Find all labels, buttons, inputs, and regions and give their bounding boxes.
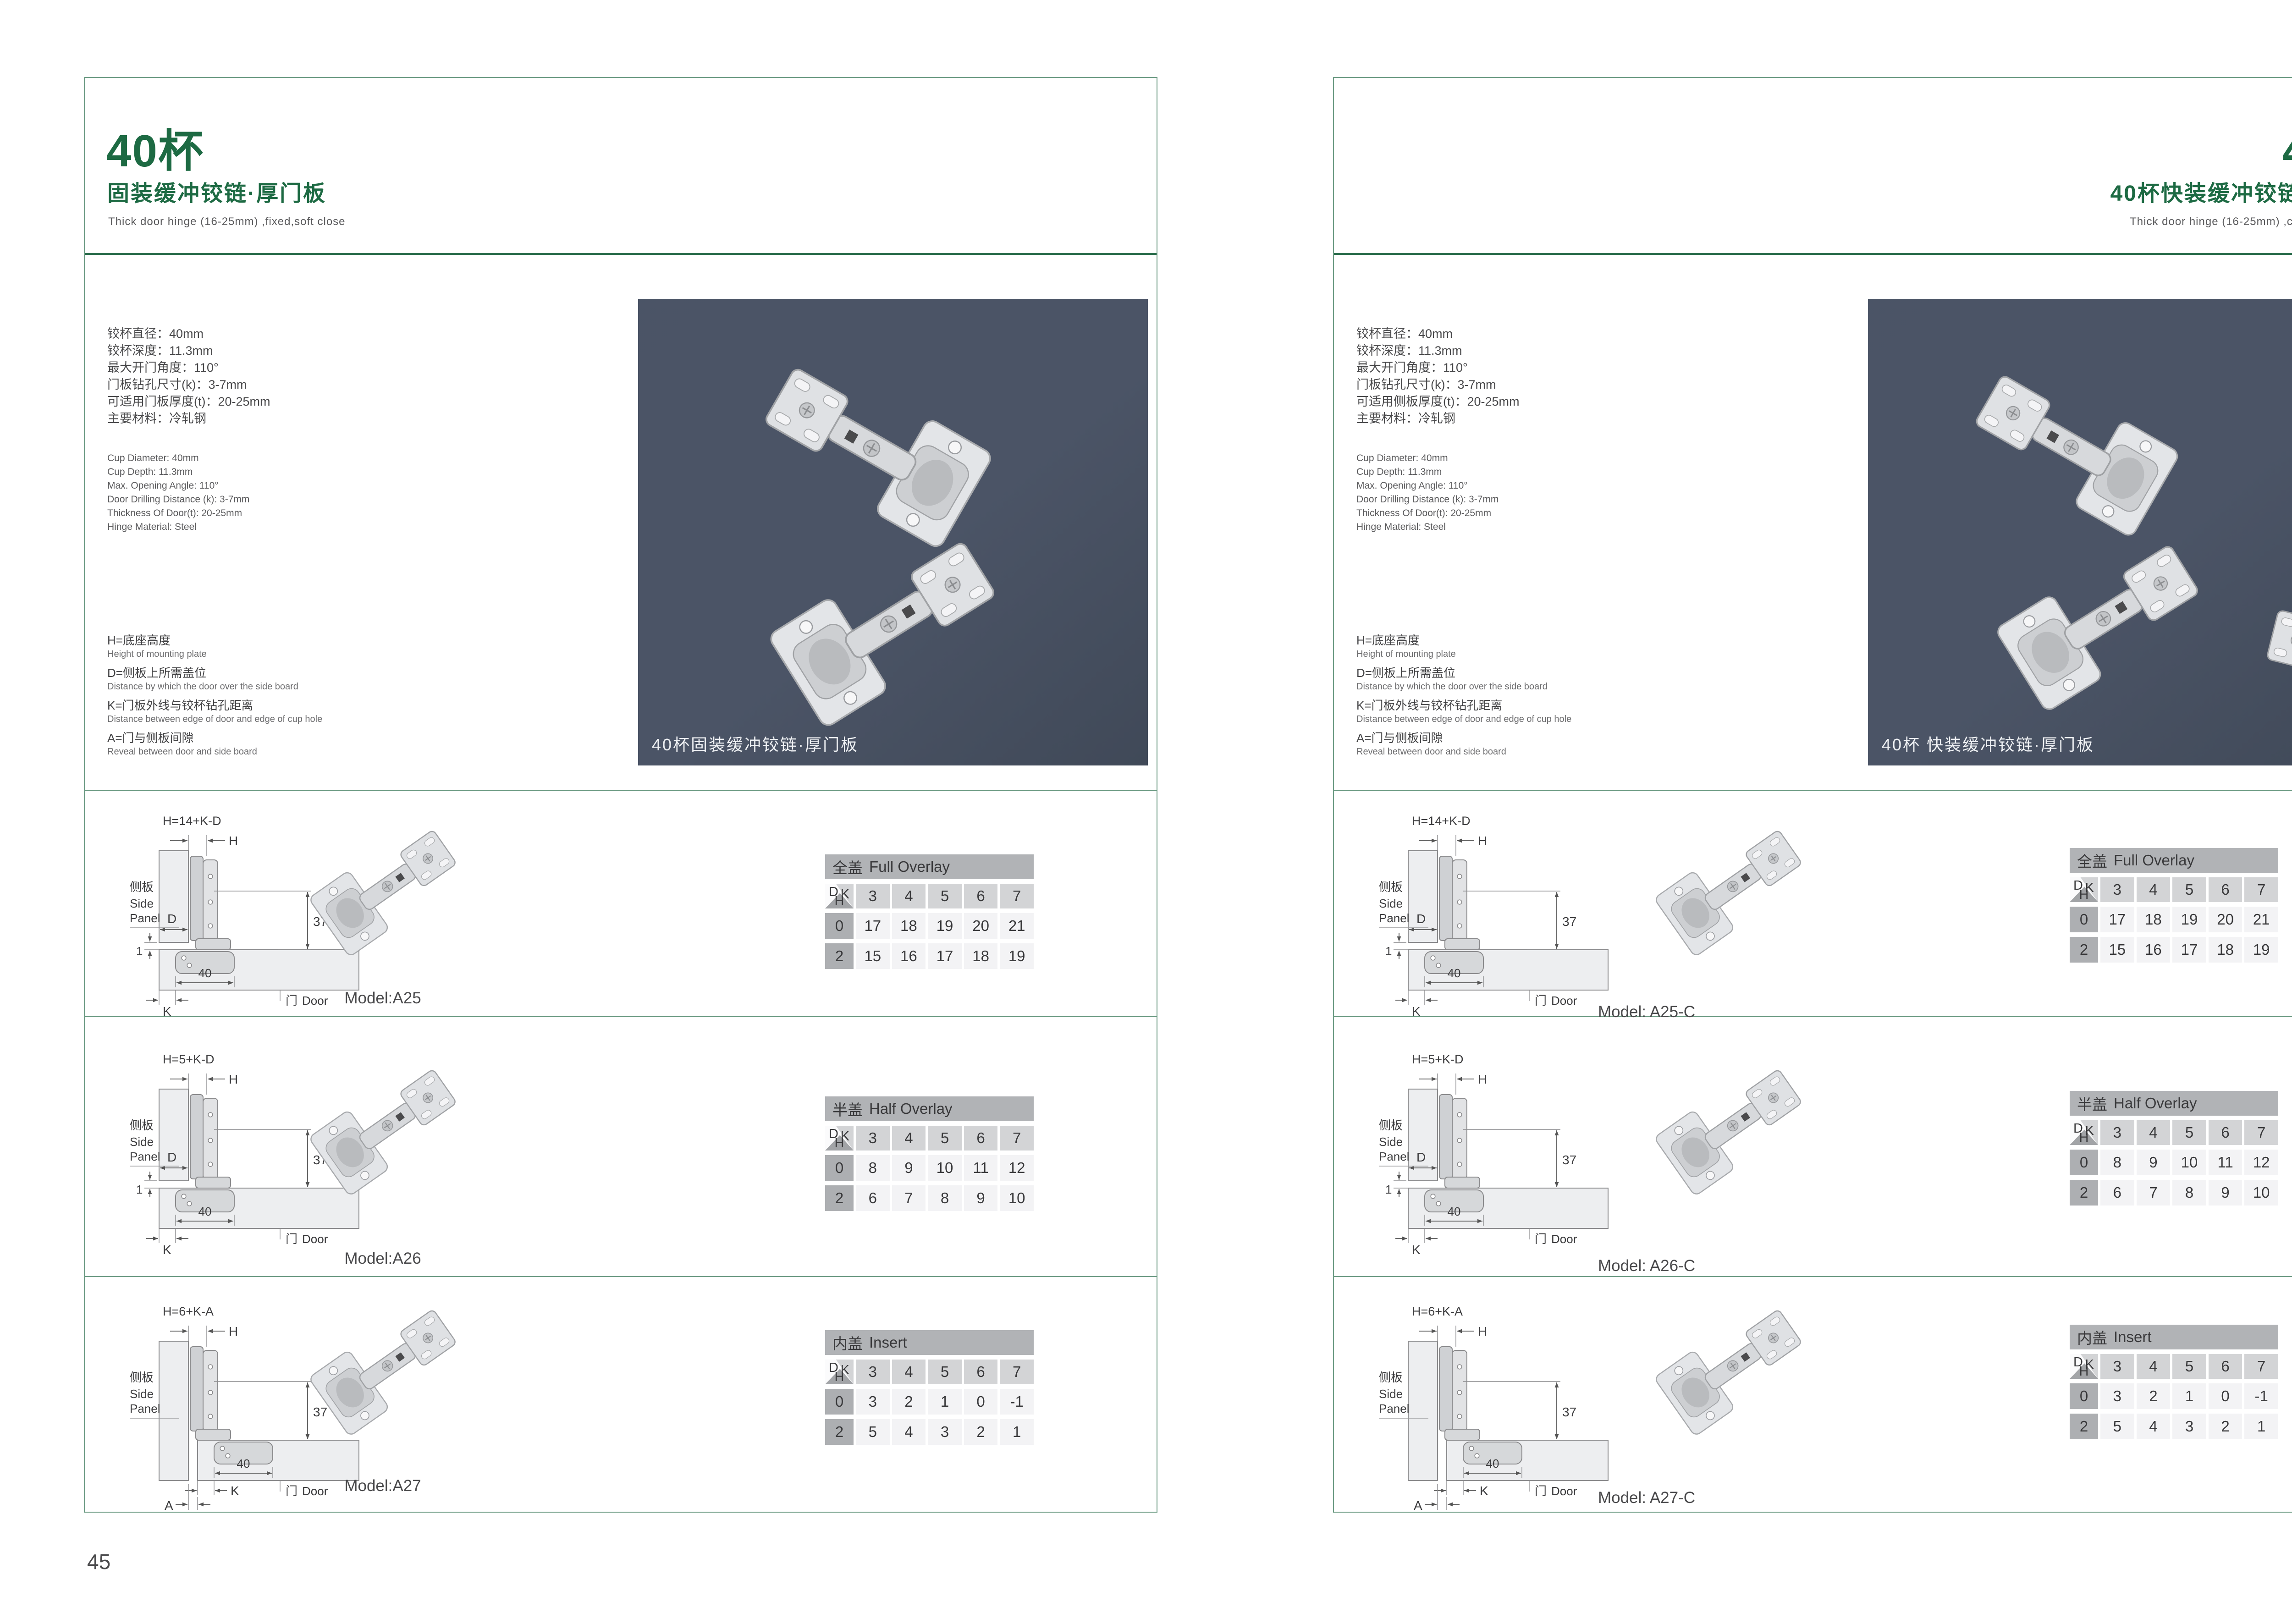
row-label-2: 2 xyxy=(825,1185,854,1211)
legend-en-2: Distance between edge of door and edge o… xyxy=(1356,713,1714,726)
row-label-0: 0 xyxy=(825,1389,854,1415)
legend-en-2: Distance between edge of door and edge o… xyxy=(107,713,465,726)
legend-cn-2: K=门板外线与铰杯钻孔距离 xyxy=(1356,698,1714,713)
spec-cn-2: 最大开门角度：110° xyxy=(107,359,270,376)
diagram-svg: H=14+K-DH37D140K侧板SidePanel门Door xyxy=(1372,810,1665,1023)
col-header-5: 5 xyxy=(2172,1354,2206,1379)
svg-text:40: 40 xyxy=(198,966,212,980)
cell-r1c2: 8 xyxy=(2172,1180,2206,1206)
cell-r0c0: 17 xyxy=(856,913,890,939)
col-header-4: 4 xyxy=(2137,1354,2171,1379)
col-header-6: 6 xyxy=(2209,1354,2242,1379)
table-corner-cell: DKH xyxy=(825,1360,854,1384)
table-title-en: Full Overlay xyxy=(869,858,950,875)
row-label-2: 2 xyxy=(825,943,854,969)
hinge-photo-row2 xyxy=(286,1053,479,1237)
hinge-illustration xyxy=(1964,357,2180,538)
table-title-cn: 半盖 xyxy=(2077,1092,2107,1114)
table-title: 内盖Insert xyxy=(825,1330,1034,1355)
cell-r0c2: 19 xyxy=(928,913,962,939)
tech-diagram-insert: H=6+K-AH3740KA侧板SidePanel门Door xyxy=(1372,1301,1665,1514)
cell-r0c1: 9 xyxy=(892,1155,926,1181)
cell-r0c3: 11 xyxy=(2209,1150,2242,1175)
spec-en-5: Hinge Material: Steel xyxy=(1356,520,1499,534)
tech-diagram-half-overlay: H=5+K-DH37D140K侧板SidePanel门Door xyxy=(1372,1049,1665,1261)
corner-letter-h: H xyxy=(2079,1365,2089,1378)
spec-cn-1: 铰杯深度：11.3mm xyxy=(1356,342,1520,359)
table-grid: DKH345670891011122678910 xyxy=(2070,1120,2278,1206)
col-header-7: 7 xyxy=(1000,1126,1034,1151)
svg-text:K: K xyxy=(1412,1243,1421,1257)
cell-r0c2: 19 xyxy=(2172,907,2206,932)
col-header-4: 4 xyxy=(2137,877,2171,902)
cell-r1c4: 10 xyxy=(2244,1180,2278,1206)
cell-r1c4: 19 xyxy=(2244,937,2278,963)
dimension-legend: H=底座高度Height of mounting plateD=侧板上所需盖位D… xyxy=(107,633,465,763)
svg-text:H=5+K-D: H=5+K-D xyxy=(163,1052,215,1066)
row-label-0: 0 xyxy=(825,1155,854,1181)
row-divider xyxy=(85,790,1157,791)
cell-r0c0: 3 xyxy=(2100,1383,2134,1409)
svg-text:D: D xyxy=(1416,912,1426,926)
hinge-row-svg xyxy=(1632,814,1824,997)
svg-text:37: 37 xyxy=(1562,914,1576,929)
svg-text:A: A xyxy=(1414,1498,1422,1513)
cell-r1c3: 2 xyxy=(964,1419,998,1445)
cell-r0c2: 1 xyxy=(928,1389,962,1415)
specs-english: Cup Diameter: 40mmCup Depth: 11.3mmMax. … xyxy=(1356,451,1499,534)
svg-text:K: K xyxy=(163,1243,171,1257)
hinge-row-svg xyxy=(286,1294,479,1477)
svg-text:D: D xyxy=(167,912,176,926)
col-header-4: 4 xyxy=(892,1360,926,1384)
col-header-5: 5 xyxy=(928,1126,962,1151)
legend-cn-1: D=侧板上所需盖位 xyxy=(1356,665,1714,681)
cell-r1c2: 17 xyxy=(928,943,962,969)
col-header-4: 4 xyxy=(892,1126,926,1151)
legend-en-0: Height of mounting plate xyxy=(1356,648,1714,661)
mounting-plate-illustration xyxy=(2266,610,2292,671)
table-title-cn: 半盖 xyxy=(832,1098,863,1120)
svg-text:Panel: Panel xyxy=(1379,1150,1410,1163)
spec-cn-2: 最大开门角度：110° xyxy=(1356,359,1520,376)
row-label-0: 0 xyxy=(2070,1383,2098,1409)
table-corner-cell: DKH xyxy=(2070,877,2098,902)
hinge-photo-row3 xyxy=(1632,1294,1824,1477)
hinge-photo-row2 xyxy=(1632,1053,1824,1237)
cell-r1c3: 18 xyxy=(964,943,998,969)
spec-cn-1: 铰杯深度：11.3mm xyxy=(107,342,270,359)
table-grid: DKH345670171819202121516171819 xyxy=(825,884,1034,969)
cell-r0c4: -1 xyxy=(1000,1389,1034,1415)
spec-cn-5: 主要材料：冷轧钢 xyxy=(1356,410,1520,427)
svg-text:H: H xyxy=(229,1324,238,1338)
row-label-2: 2 xyxy=(825,1419,854,1445)
svg-text:Side: Side xyxy=(1379,1387,1403,1401)
catalog-page-left: 40杯 固装缓冲铰链·厚门板 Thick door hinge (16-25mm… xyxy=(84,77,1157,1513)
table-title-en: Insert xyxy=(869,1334,907,1351)
spec-en-5: Hinge Material: Steel xyxy=(107,520,249,534)
table-corner-cell: DKH xyxy=(825,1126,854,1151)
spec-en-4: Thickness Of Door(t): 20-25mm xyxy=(1356,506,1499,520)
svg-text:D: D xyxy=(1416,1150,1426,1164)
table-title-cn: 内盖 xyxy=(832,1332,863,1354)
cell-r0c1: 2 xyxy=(892,1389,926,1415)
cell-r0c1: 9 xyxy=(2137,1150,2171,1175)
col-header-3: 3 xyxy=(856,1360,890,1384)
svg-text:Panel: Panel xyxy=(1379,911,1410,925)
table-grid: DKH345670891011122678910 xyxy=(825,1126,1034,1211)
cell-r0c3: 0 xyxy=(964,1389,998,1415)
spec-en-0: Cup Diameter: 40mm xyxy=(107,451,249,465)
cell-r1c4: 1 xyxy=(1000,1419,1034,1445)
hinge-illustration xyxy=(309,817,465,957)
legend-en-3: Reveal between door and side board xyxy=(1356,746,1714,758)
col-header-6: 6 xyxy=(964,884,998,908)
col-header-5: 5 xyxy=(928,884,962,908)
spec-en-0: Cup Diameter: 40mm xyxy=(1356,451,1499,465)
col-header-7: 7 xyxy=(2244,1120,2278,1145)
photo-caption: 40杯 快装缓冲铰链·厚门板 xyxy=(1882,732,2094,755)
diagram-svg: H=6+K-AH3740KA侧板SidePanel门Door xyxy=(1372,1301,1665,1514)
svg-text:Side: Side xyxy=(1379,1135,1403,1149)
svg-text:H=6+K-A: H=6+K-A xyxy=(163,1305,214,1318)
cell-r1c1: 7 xyxy=(2137,1180,2171,1206)
cell-r0c1: 2 xyxy=(2137,1383,2171,1409)
svg-text:37: 37 xyxy=(1562,1405,1576,1419)
model-label: Model: A26-C xyxy=(1550,1257,1743,1275)
page-number-left: 45 xyxy=(87,1549,110,1574)
table-title: 全盖Full Overlay xyxy=(825,854,1034,879)
table-title: 半盖Half Overlay xyxy=(825,1096,1034,1121)
cell-r1c0: 6 xyxy=(856,1185,890,1211)
svg-text:侧板: 侧板 xyxy=(1379,880,1403,894)
svg-text:Panel: Panel xyxy=(130,1150,160,1163)
cell-r1c1: 4 xyxy=(2137,1414,2171,1439)
col-header-5: 5 xyxy=(928,1360,962,1384)
row-label-2: 2 xyxy=(2070,1414,2098,1439)
row-label-0: 0 xyxy=(2070,907,2098,932)
cell-r0c4: 12 xyxy=(1000,1155,1034,1181)
table-grid: DKH3456703210-1254321 xyxy=(825,1360,1034,1445)
cell-r0c0: 8 xyxy=(2100,1150,2134,1175)
cell-r0c1: 18 xyxy=(892,913,926,939)
spec-en-2: Max. Opening Angle: 110° xyxy=(1356,479,1499,493)
svg-text:Side: Side xyxy=(1379,897,1403,910)
table-title-en: Half Overlay xyxy=(2114,1095,2197,1112)
table-title-cn: 全盖 xyxy=(832,856,863,878)
specs-english: Cup Diameter: 40mmCup Depth: 11.3mmMax. … xyxy=(107,451,249,534)
svg-text:门: 门 xyxy=(1535,1484,1547,1498)
table-grid: DKH3456703210-1254321 xyxy=(2070,1354,2278,1439)
cell-r0c3: 0 xyxy=(2209,1383,2242,1409)
row-divider xyxy=(1334,790,2292,791)
specs-chinese: 铰杯直径：40mm铰杯深度：11.3mm最大开门角度：110°门板钻孔尺寸(k)… xyxy=(1356,325,1520,427)
hinge-illustration xyxy=(1995,527,2210,712)
cell-r0c0: 3 xyxy=(856,1389,890,1415)
table-title: 半盖Half Overlay xyxy=(2070,1091,2278,1116)
cell-r0c2: 10 xyxy=(2172,1150,2206,1175)
table-half-overlay: 半盖Half OverlayDKH345670891011122678910 xyxy=(2070,1091,2278,1206)
cell-r1c0: 15 xyxy=(2100,937,2134,963)
hinge-illustration xyxy=(309,1057,465,1196)
col-header-3: 3 xyxy=(856,884,890,908)
hinge-photo-row1 xyxy=(286,814,479,997)
hinge-illustration xyxy=(1654,817,1811,957)
corner-letter-h: H xyxy=(835,1137,844,1150)
cell-r0c2: 10 xyxy=(928,1155,962,1181)
dimension-legend: H=底座高度Height of mounting plateD=侧板上所需盖位D… xyxy=(1356,633,1714,763)
svg-text:门: 门 xyxy=(1535,1232,1547,1246)
table-title: 内盖Insert xyxy=(2070,1325,2278,1349)
cell-r0c3: 20 xyxy=(2209,907,2242,932)
page-tagline-english: Thick door hinge (16-25mm) ,fixed,soft c… xyxy=(108,215,346,228)
svg-text:H=14+K-D: H=14+K-D xyxy=(163,814,221,828)
table-full-overlay: 全盖Full OverlayDKH34567017181920212151617… xyxy=(825,854,1034,969)
spec-en-3: Door Drilling Distance (k): 3-7mm xyxy=(1356,493,1499,506)
hinge-illustration xyxy=(752,347,993,550)
cell-r0c4: -1 xyxy=(2244,1383,2278,1409)
cell-r1c2: 3 xyxy=(2172,1414,2206,1439)
spec-cn-0: 铰杯直径：40mm xyxy=(1356,325,1520,342)
svg-text:H: H xyxy=(1478,834,1487,848)
page-title: 40杯 xyxy=(2282,115,2292,180)
svg-text:40: 40 xyxy=(198,1205,212,1218)
col-header-6: 6 xyxy=(2209,1120,2242,1145)
col-header-5: 5 xyxy=(2172,877,2206,902)
svg-text:H: H xyxy=(229,1072,238,1086)
svg-text:1: 1 xyxy=(136,944,143,958)
col-header-6: 6 xyxy=(964,1360,998,1384)
legend-cn-2: K=门板外线与铰杯钻孔距离 xyxy=(107,698,465,713)
svg-text:H=6+K-A: H=6+K-A xyxy=(1412,1305,1463,1318)
cell-r1c1: 4 xyxy=(892,1419,926,1445)
header-divider xyxy=(1334,253,2292,255)
spec-en-4: Thickness Of Door(t): 20-25mm xyxy=(107,506,249,520)
table-title-en: Half Overlay xyxy=(869,1100,953,1118)
spec-cn-3: 门板钻孔尺寸(k)：3-7mm xyxy=(1356,376,1520,393)
svg-text:K: K xyxy=(1412,1004,1421,1018)
model-label: Model: A27-C xyxy=(1550,1489,1743,1507)
col-header-7: 7 xyxy=(1000,1360,1034,1384)
table-title-en: Insert xyxy=(2114,1328,2152,1346)
hinge-photo-row1 xyxy=(1632,814,1824,997)
photo-caption: 40杯固装缓冲铰链·厚门板 xyxy=(652,732,859,755)
table-full-overlay: 全盖Full OverlayDKH34567017181920212151617… xyxy=(2070,848,2278,963)
cell-r1c3: 2 xyxy=(2209,1414,2242,1439)
col-header-5: 5 xyxy=(2172,1120,2206,1145)
spec-cn-0: 铰杯直径：40mm xyxy=(107,325,270,342)
row-label-2: 2 xyxy=(2070,937,2098,963)
cell-r0c3: 11 xyxy=(964,1155,998,1181)
corner-letter-h: H xyxy=(835,895,844,908)
row-label-0: 0 xyxy=(2070,1150,2098,1175)
row-divider xyxy=(85,1276,1157,1277)
table-title: 全盖Full Overlay xyxy=(2070,848,2278,873)
corner-letter-h: H xyxy=(835,1371,844,1384)
table-title-cn: 全盖 xyxy=(2077,849,2107,871)
spec-cn-5: 主要材料：冷轧钢 xyxy=(107,410,270,427)
table-title-cn: 内盖 xyxy=(2077,1326,2107,1348)
col-header-7: 7 xyxy=(2244,877,2278,902)
page-title: 40杯 xyxy=(106,115,204,180)
svg-text:H: H xyxy=(229,834,238,848)
header-divider xyxy=(85,253,1157,255)
page-subtitle: 40杯快装缓冲铰链·厚门板 xyxy=(2110,175,2292,207)
hinge-row-svg xyxy=(1632,1294,1824,1477)
specs-chinese: 铰杯直径：40mm铰杯深度：11.3mm最大开门角度：110°门板钻孔尺寸(k)… xyxy=(107,325,270,427)
row-label-2: 2 xyxy=(2070,1180,2098,1206)
col-header-7: 7 xyxy=(1000,884,1034,908)
svg-text:H=14+K-D: H=14+K-D xyxy=(1412,814,1471,828)
cell-r0c0: 8 xyxy=(856,1155,890,1181)
legend-en-1: Distance by which the door over the side… xyxy=(1356,681,1714,693)
svg-text:40: 40 xyxy=(1486,1457,1499,1470)
legend-cn-0: H=底座高度 xyxy=(107,633,465,648)
spec-cn-4: 可适用门板厚度(t)：20-25mm xyxy=(107,393,270,410)
catalog-spread: { "shared": { "diagram": { "side_panel_c… xyxy=(0,0,2292,1624)
corner-letter-h: H xyxy=(2079,1131,2089,1145)
row-label-0: 0 xyxy=(825,913,854,939)
svg-text:Side: Side xyxy=(130,1135,154,1149)
hinge-row-svg xyxy=(286,814,479,997)
hinge-photo-row3 xyxy=(286,1294,479,1477)
spec-en-3: Door Drilling Distance (k): 3-7mm xyxy=(107,493,249,506)
hinge-illustration xyxy=(1654,1297,1811,1436)
legend-cn-3: A=门与侧板间隙 xyxy=(107,730,465,746)
hinge-illustration xyxy=(768,522,1008,728)
page-subtitle: 固装缓冲铰链·厚门板 xyxy=(107,175,326,207)
col-header-4: 4 xyxy=(892,884,926,908)
svg-text:40: 40 xyxy=(1448,966,1461,980)
col-header-7: 7 xyxy=(2244,1354,2278,1379)
svg-text:1: 1 xyxy=(1385,1183,1392,1196)
cell-r0c4: 21 xyxy=(2244,907,2278,932)
svg-text:门: 门 xyxy=(1535,994,1547,1007)
model-label: Model: A25-C xyxy=(1550,1003,1743,1021)
legend-en-1: Distance by which the door over the side… xyxy=(107,681,465,693)
svg-text:K: K xyxy=(231,1484,239,1498)
table-half-overlay: 半盖Half OverlayDKH345670891011122678910 xyxy=(825,1096,1034,1211)
svg-text:40: 40 xyxy=(1448,1205,1461,1218)
svg-text:Panel: Panel xyxy=(130,1402,160,1415)
col-header-3: 3 xyxy=(2100,877,2134,902)
svg-text:D: D xyxy=(167,1150,176,1164)
svg-text:H: H xyxy=(1478,1324,1487,1338)
product-photo-illustration xyxy=(1868,299,2292,765)
hinge-illustration xyxy=(1654,1057,1811,1196)
tech-diagram-full-overlay: H=14+K-DH37D140K侧板SidePanel门Door xyxy=(1372,810,1665,1023)
svg-text:H=5+K-D: H=5+K-D xyxy=(1412,1052,1464,1066)
svg-text:侧板: 侧板 xyxy=(130,1371,154,1384)
row-divider xyxy=(1334,1276,2292,1277)
svg-text:侧板: 侧板 xyxy=(130,880,154,894)
col-header-6: 6 xyxy=(964,1126,998,1151)
table-insert: 内盖InsertDKH3456703210-1254321 xyxy=(2070,1325,2278,1439)
table-grid: DKH345670171819202121516171819 xyxy=(2070,877,2278,963)
cell-r0c2: 1 xyxy=(2172,1383,2206,1409)
cell-r1c0: 15 xyxy=(856,943,890,969)
col-header-3: 3 xyxy=(2100,1120,2134,1145)
svg-text:Side: Side xyxy=(130,1387,154,1401)
diagram-svg: H=5+K-DH37D140K侧板SidePanel门Door xyxy=(1372,1049,1665,1261)
cell-r0c0: 17 xyxy=(2100,907,2134,932)
table-title-en: Full Overlay xyxy=(2114,852,2194,869)
product-photo: 40杯 快装缓冲铰链·厚门板 xyxy=(1868,299,2292,765)
cell-r0c4: 21 xyxy=(1000,913,1034,939)
legend-en-0: Height of mounting plate xyxy=(107,648,465,661)
legend-cn-3: A=门与侧板间隙 xyxy=(1356,730,1714,746)
svg-text:侧板: 侧板 xyxy=(130,1118,154,1132)
cell-r1c1: 16 xyxy=(2137,937,2171,963)
legend-cn-0: H=底座高度 xyxy=(1356,633,1714,648)
svg-text:侧板: 侧板 xyxy=(1379,1371,1403,1384)
svg-text:侧板: 侧板 xyxy=(1379,1118,1403,1132)
svg-text:H: H xyxy=(1478,1072,1487,1086)
svg-text:37: 37 xyxy=(1562,1153,1576,1167)
hinge-row-svg xyxy=(1632,1053,1824,1237)
cell-r1c4: 10 xyxy=(1000,1185,1034,1211)
table-corner-cell: DKH xyxy=(2070,1354,2098,1379)
svg-text:K: K xyxy=(1480,1484,1488,1498)
svg-text:40: 40 xyxy=(237,1457,250,1470)
svg-text:Side: Side xyxy=(130,897,154,910)
svg-text:1: 1 xyxy=(136,1183,143,1196)
svg-text:Door: Door xyxy=(1551,1232,1577,1246)
svg-text:Panel: Panel xyxy=(130,911,160,925)
svg-text:K: K xyxy=(163,1004,171,1018)
table-insert: 内盖InsertDKH3456703210-1254321 xyxy=(825,1330,1034,1445)
spec-cn-3: 门板钻孔尺寸(k)：3-7mm xyxy=(107,376,270,393)
cell-r1c2: 17 xyxy=(2172,937,2206,963)
spec-en-1: Cup Depth: 11.3mm xyxy=(107,465,249,479)
corner-letter-h: H xyxy=(2079,888,2089,902)
cell-r1c1: 16 xyxy=(892,943,926,969)
cell-r1c0: 6 xyxy=(2100,1180,2134,1206)
cell-r0c4: 12 xyxy=(2244,1150,2278,1175)
table-corner-cell: DKH xyxy=(825,884,854,908)
col-header-6: 6 xyxy=(2209,877,2242,902)
col-header-3: 3 xyxy=(2100,1354,2134,1379)
spec-en-2: Max. Opening Angle: 110° xyxy=(107,479,249,493)
model-label: Model:A27 xyxy=(286,1477,479,1495)
table-corner-cell: DKH xyxy=(2070,1120,2098,1145)
spec-en-1: Cup Depth: 11.3mm xyxy=(1356,465,1499,479)
svg-text:A: A xyxy=(165,1498,173,1513)
cell-r1c3: 18 xyxy=(2209,937,2242,963)
cell-r1c2: 3 xyxy=(928,1419,962,1445)
hinge-illustration xyxy=(309,1297,465,1436)
model-label: Model:A25 xyxy=(286,989,479,1007)
col-header-4: 4 xyxy=(2137,1120,2171,1145)
cell-r1c0: 5 xyxy=(856,1419,890,1445)
cell-r1c3: 9 xyxy=(964,1185,998,1211)
cell-r1c4: 19 xyxy=(1000,943,1034,969)
cell-r1c0: 5 xyxy=(2100,1414,2134,1439)
legend-en-3: Reveal between door and side board xyxy=(107,746,465,758)
cell-r1c2: 8 xyxy=(928,1185,962,1211)
spec-cn-4: 可适用侧板厚度(t)：20-25mm xyxy=(1356,393,1520,410)
cell-r1c4: 1 xyxy=(2244,1414,2278,1439)
model-label: Model:A26 xyxy=(286,1250,479,1268)
hinge-row-svg xyxy=(286,1053,479,1237)
cell-r1c1: 7 xyxy=(892,1185,926,1211)
cell-r0c1: 18 xyxy=(2137,907,2171,932)
product-photo: 40杯固装缓冲铰链·厚门板 xyxy=(638,299,1148,765)
cell-r0c3: 20 xyxy=(964,913,998,939)
svg-text:Panel: Panel xyxy=(1379,1402,1410,1415)
col-header-3: 3 xyxy=(856,1126,890,1151)
